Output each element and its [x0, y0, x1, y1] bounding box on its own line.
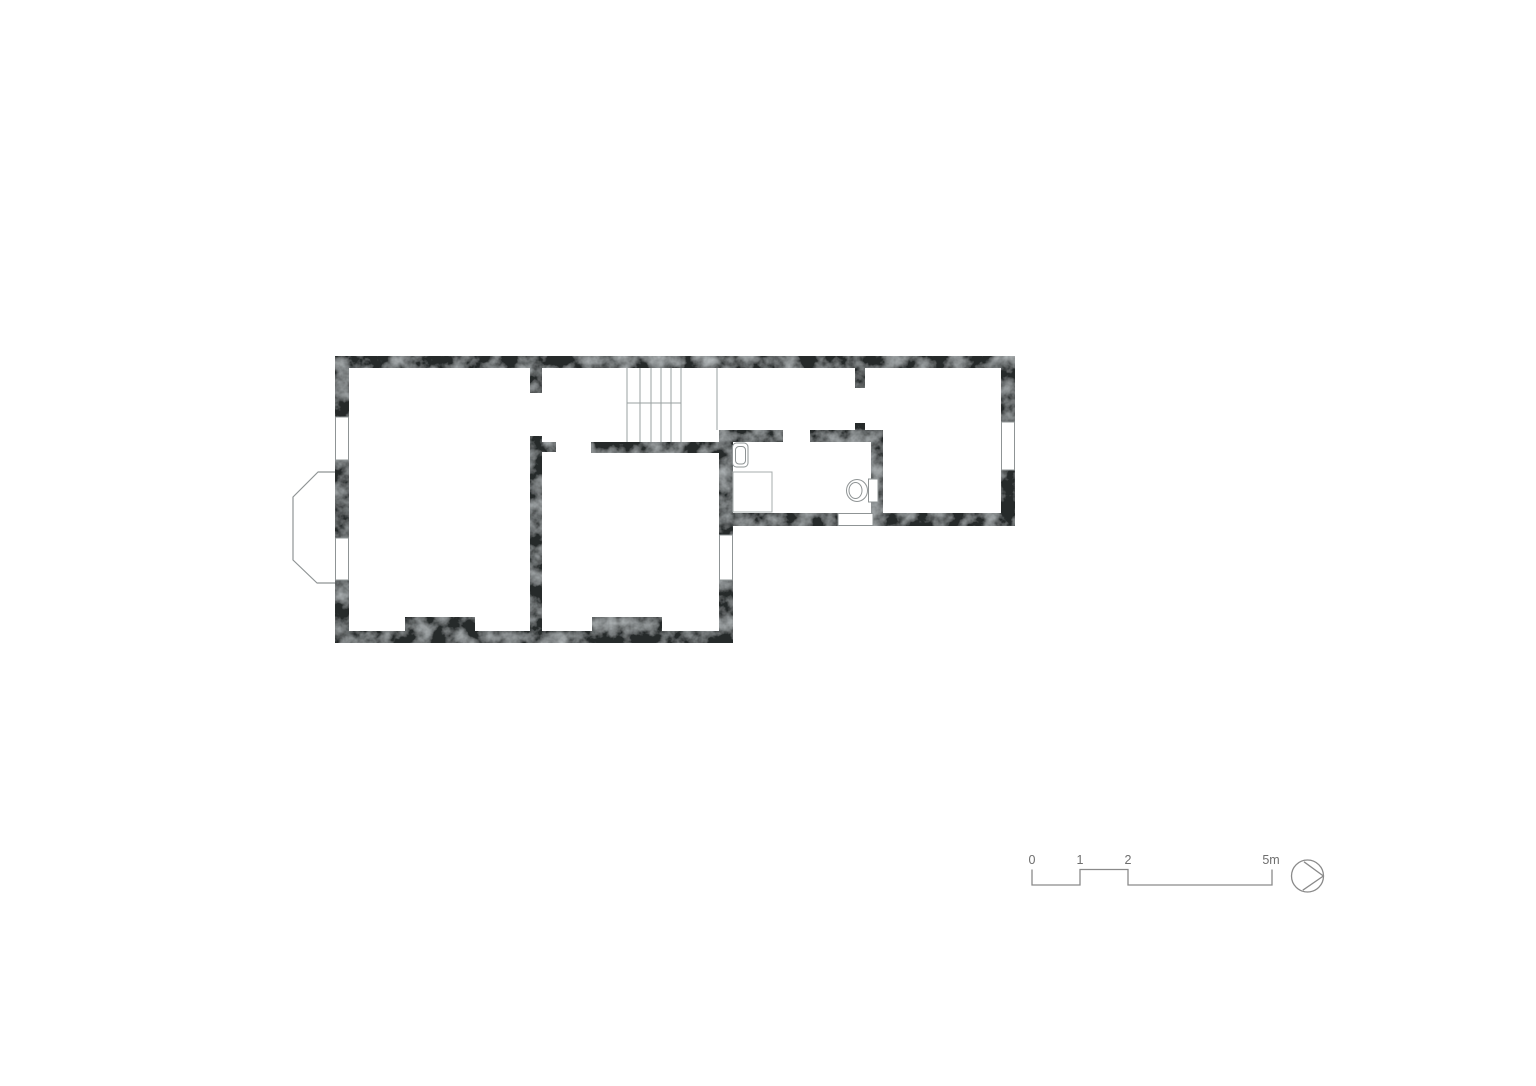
toilet-cistern [869, 479, 879, 502]
wall-bottom-extension-left [719, 513, 838, 526]
scale-bar: 0 1 2 5m [1029, 853, 1280, 885]
wall-left-middle [335, 460, 349, 538]
bathroom-fixtures [733, 443, 879, 512]
floor-plan-drawing: 0 1 2 5m [0, 0, 1536, 1086]
scale-label-1: 1 [1077, 853, 1084, 867]
opening-extension-bottom [838, 514, 873, 526]
bay-window [293, 472, 335, 583]
scale-bar-line [1032, 870, 1272, 886]
wall-top [335, 356, 1015, 368]
wall-nib-corridor [855, 423, 865, 431]
walls [335, 356, 1015, 643]
wall-partition-left [530, 436, 542, 631]
wall-left-upper [335, 356, 349, 417]
toilet-bowl-inner [849, 483, 862, 499]
wall-stub-left-room [530, 368, 542, 393]
fireplace-pier-middle [592, 617, 662, 632]
window-right-main [720, 535, 733, 580]
openings [336, 417, 1015, 580]
window-right-extension [1002, 422, 1015, 470]
wall-bathroom-top-left [719, 430, 783, 442]
drawing-sheet: 0 1 2 5m [0, 0, 1536, 1086]
wall-middle-room-top [591, 442, 719, 453]
staircase [627, 368, 717, 442]
wall-right-extension-upper [1001, 356, 1015, 422]
wall-bottom-main [335, 631, 733, 643]
wall-nib-partition [542, 442, 556, 452]
wall-right-main-lower [719, 580, 733, 643]
window-left-upper [336, 417, 349, 460]
shower-tray [733, 472, 772, 512]
fireplace-pier-left [405, 617, 475, 632]
toilet [847, 479, 879, 502]
sink [733, 443, 749, 467]
wall-bottom-extension-right [873, 513, 1015, 526]
scale-label-0: 0 [1029, 853, 1036, 867]
wall-bathroom-top-right [810, 430, 883, 442]
north-arrow-icon [1292, 860, 1324, 892]
window-left-lower [336, 538, 349, 580]
scale-label-5m: 5m [1262, 853, 1279, 867]
wall-stub-corridor [855, 368, 865, 388]
wall-right-extension-lower [1001, 470, 1015, 526]
scale-label-2: 2 [1125, 853, 1132, 867]
